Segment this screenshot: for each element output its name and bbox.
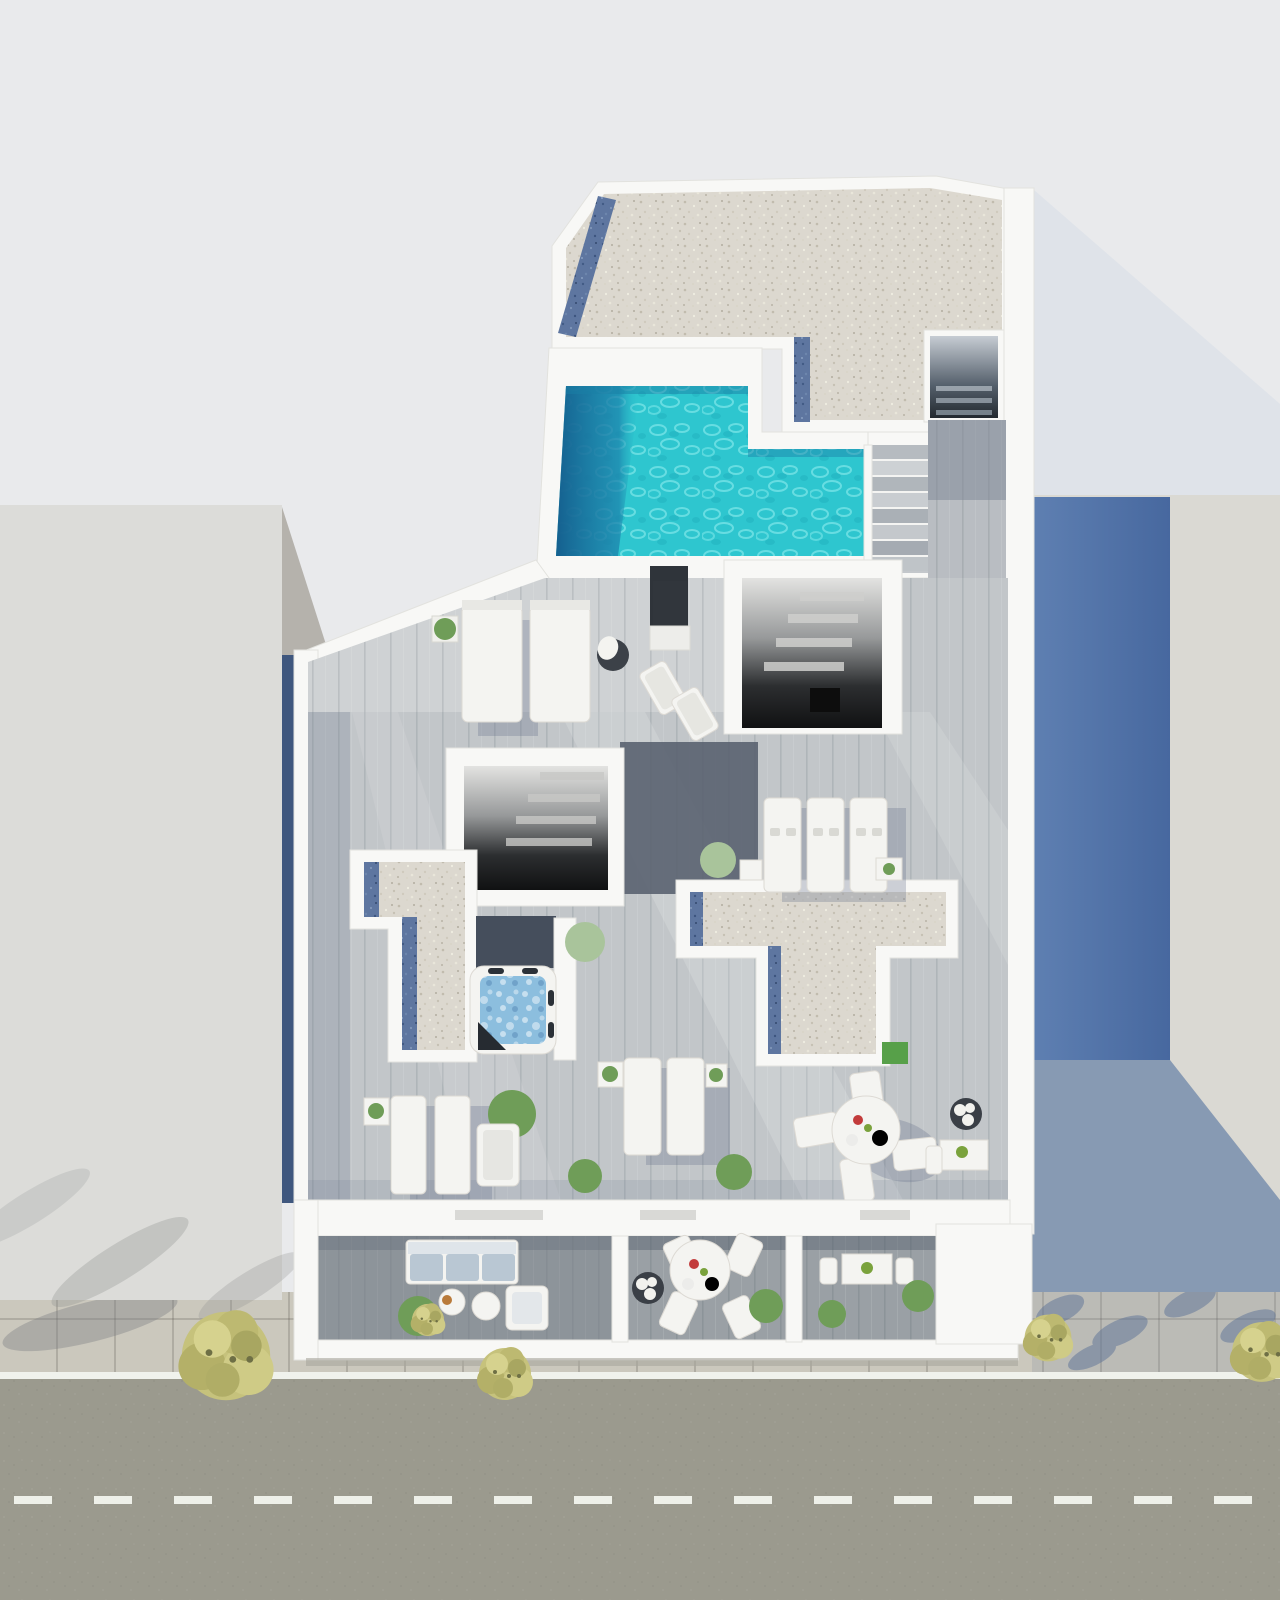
aerial-rendering xyxy=(0,0,1280,1600)
daybed-1 xyxy=(462,606,522,722)
tray-item xyxy=(442,1295,452,1305)
side-table-plant-2 xyxy=(602,1066,618,1082)
bistro-chair-1 xyxy=(820,1258,837,1284)
lounger-7 xyxy=(435,1096,470,1194)
lounger-6 xyxy=(391,1096,426,1194)
pool-edge-shadow-top xyxy=(566,386,748,394)
coffee-table-2 xyxy=(472,1292,500,1320)
sofa-cushion-1 xyxy=(410,1254,443,1281)
stairwell-interior-center xyxy=(464,766,608,890)
balcony-plate-2 xyxy=(682,1278,694,1290)
desk-chair xyxy=(926,1146,942,1174)
sofa-cushion-3 xyxy=(482,1254,515,1281)
daybed-2-headboard xyxy=(530,600,590,610)
sofa-back-cushions xyxy=(408,1242,516,1254)
street xyxy=(0,1372,1280,1600)
armchair-cushion xyxy=(512,1292,542,1324)
right-wall xyxy=(1004,188,1034,1234)
table-item-red xyxy=(853,1115,863,1125)
balcony-table-item-green xyxy=(700,1268,708,1276)
table-item-green xyxy=(864,1124,872,1132)
balcony-outer-wall xyxy=(306,1340,1018,1360)
sofa-cushion-2 xyxy=(446,1254,479,1281)
rooftop-stairwell-opening-top xyxy=(924,330,1004,422)
lounger-1 xyxy=(764,798,801,892)
privacy-screen-base xyxy=(650,626,690,650)
balcony-divider-1 xyxy=(612,1236,628,1342)
side-table-1 xyxy=(740,860,762,880)
side-table-plant-3 xyxy=(709,1068,723,1082)
privacy-screen xyxy=(653,581,687,627)
right-neighbor-rooftop xyxy=(1030,495,1280,1292)
plate-1 xyxy=(872,1130,888,1146)
pool-edge-shadow-step xyxy=(748,449,871,457)
potted-plant xyxy=(565,922,605,962)
stairwell-object xyxy=(810,688,840,712)
desk-plant xyxy=(956,1146,968,1158)
balcony-plant-3 xyxy=(902,1280,934,1312)
walkway-shadow-top xyxy=(928,420,1006,500)
balcony-table-item-red xyxy=(689,1259,699,1269)
lounger-5 xyxy=(667,1058,704,1155)
bush-2 xyxy=(568,1159,602,1193)
balcony-plant-4 xyxy=(818,1300,846,1328)
plate-2 xyxy=(846,1134,858,1146)
left-roof xyxy=(0,505,282,1300)
balcony-left-wall xyxy=(294,1200,318,1360)
building-cast-shadow xyxy=(1030,497,1170,1060)
balcony-plant-2 xyxy=(749,1289,783,1323)
building-front-shadow xyxy=(306,1358,1018,1366)
deck-shadow-left xyxy=(308,712,350,1204)
asphalt-texture xyxy=(0,1378,1280,1600)
front-wall xyxy=(294,1200,1010,1236)
bistro-plant xyxy=(861,1262,873,1274)
balcony-right-block xyxy=(936,1224,1032,1344)
lounger-2 xyxy=(807,798,844,892)
pool-access-stairs xyxy=(864,445,934,573)
jacuzzi-nook-deck xyxy=(476,916,556,968)
stairwell-void-upper xyxy=(724,560,902,734)
left-neighbor-rooftop xyxy=(0,505,330,1330)
stair-treads xyxy=(872,445,934,571)
daybed-2 xyxy=(530,606,590,722)
bush-3 xyxy=(716,1154,752,1190)
side-table-plant-4 xyxy=(368,1103,384,1119)
balcony-divider-2 xyxy=(786,1236,802,1342)
blue-gravel-texture-2 xyxy=(794,337,810,422)
chaise-frame xyxy=(477,1124,519,1186)
rendering-canvas xyxy=(0,0,1280,1600)
bistro-chair-2 xyxy=(896,1258,913,1284)
stair-stringer xyxy=(864,445,872,573)
lounger-4 xyxy=(624,1058,661,1155)
jacuzzi-bubbles xyxy=(480,976,546,1044)
side-table-plant xyxy=(883,863,895,875)
daybed-1-headboard xyxy=(462,600,522,610)
bush-1 xyxy=(700,842,736,878)
balcony-round-table xyxy=(670,1240,730,1300)
balcony-plate-1 xyxy=(705,1277,719,1291)
plant-box-foliage xyxy=(434,618,456,640)
grass-patch xyxy=(882,1042,908,1064)
deck-shadow-patch xyxy=(620,742,758,894)
